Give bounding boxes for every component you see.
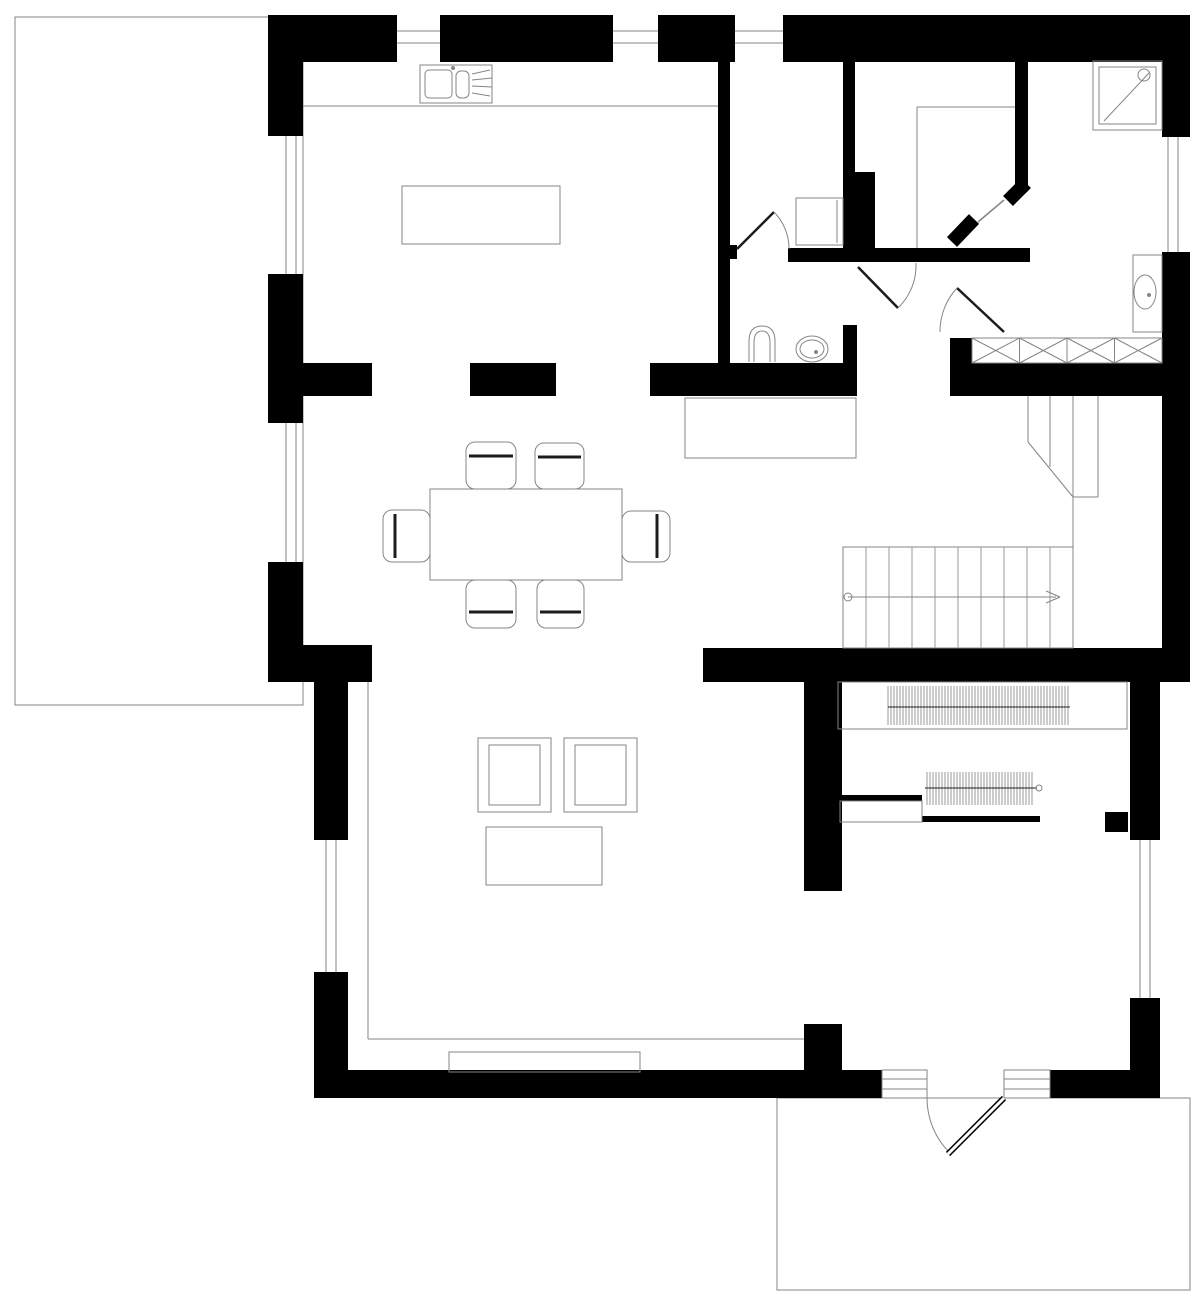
wall-left-a	[268, 15, 303, 136]
wall-kitchen-divider	[718, 62, 730, 363]
shower-drain-line	[1104, 73, 1149, 121]
toilet-bowl-inner	[754, 331, 770, 362]
terrace-left	[15, 17, 303, 705]
wall-pocket	[837, 795, 922, 801]
wall-top-c	[658, 15, 735, 62]
wall-mid-stub-2	[470, 363, 556, 396]
pocket-door-cassette	[840, 801, 922, 822]
wall-bottom-a	[314, 1070, 882, 1098]
wall-diagonal-pier	[1015, 62, 1028, 185]
stairs-arrow-a	[1046, 591, 1060, 597]
shower-head	[1138, 69, 1150, 81]
wall-top-right-corner	[1162, 15, 1190, 137]
wall-bath-top	[788, 248, 1030, 262]
terrace-door-sill	[449, 1052, 640, 1072]
armchair-1-seat	[489, 745, 540, 805]
stairs-arrow-b	[1046, 597, 1060, 603]
wall-vestibule	[922, 816, 1040, 822]
diag-door-leaf	[978, 200, 1004, 222]
vanity-sink-drain	[1148, 294, 1151, 297]
niche-door-a-leaf	[858, 267, 898, 308]
kitchen-drainer-line-3	[472, 86, 492, 87]
wall-top-d	[783, 15, 1162, 62]
dining-table	[430, 489, 622, 580]
bathroom-sink-inner	[800, 340, 824, 358]
kitchen-drainer-line-1	[472, 70, 490, 74]
wall-niche-nub	[950, 338, 972, 396]
wall-stair-band	[703, 648, 1190, 682]
dining-chair-top-2	[535, 443, 584, 489]
dining-chair-left	[383, 510, 430, 562]
kitchen-sink-basin	[425, 70, 452, 98]
bathroom-sink-drain	[815, 351, 818, 354]
wall-hall-lower	[804, 1024, 842, 1070]
wall-lowerleft-a	[314, 682, 348, 840]
wall-vestibule-nub	[1105, 812, 1128, 832]
terrace-bottom-right	[777, 1098, 1190, 1290]
niche-door-a-swing	[898, 263, 916, 308]
armchair-2-seat	[575, 745, 626, 805]
kitchen-sink-tap	[452, 67, 455, 70]
entry-door-swing	[927, 1098, 949, 1152]
vanity-counter	[1133, 255, 1162, 332]
entry-sill-left	[882, 1070, 927, 1098]
wall-upperright	[1162, 252, 1190, 660]
dining-chair-right	[622, 511, 670, 562]
niche-door-b-leaf	[957, 288, 1004, 332]
kitchen-drainer-line-2	[472, 78, 492, 80]
entry-door-leaf-core	[948, 1098, 1004, 1154]
closet-hanger-hatch	[888, 686, 1068, 725]
diag-door-jamb-1	[1008, 183, 1026, 201]
dining-chair-bottom-2	[537, 580, 584, 628]
wall-lowerright-a	[1130, 680, 1160, 840]
closet-outline	[838, 682, 1127, 729]
vanity-sink	[1134, 275, 1156, 309]
entry-sill-right	[1004, 1070, 1050, 1098]
wardrobe-cabinet	[972, 338, 1162, 363]
bath-door-swing	[774, 212, 789, 249]
wall-left-b	[268, 274, 303, 423]
niche-door-b-swing	[940, 288, 957, 332]
wall-mid-stub-1	[268, 363, 372, 396]
dining-chair-top-1	[466, 442, 516, 489]
diag-door-jamb-2	[952, 219, 974, 242]
wall-top-b	[440, 15, 613, 62]
dining-chair-bottom-1	[466, 580, 516, 628]
floor-plan-svg	[0, 0, 1200, 1309]
floor-plan	[0, 0, 1200, 1309]
wall-kitchen-divider-nub	[730, 245, 737, 259]
wall-mid-main	[650, 363, 857, 396]
washing-machine	[796, 198, 843, 245]
wall-niche-stub	[843, 325, 857, 396]
wall-mid-right	[972, 363, 1190, 396]
kitchen-sink-half-basin	[456, 71, 469, 98]
kitchen-island	[402, 186, 560, 244]
bath-door-leaf	[737, 212, 774, 249]
coffee-table	[486, 827, 602, 885]
hall-sideboard	[685, 398, 856, 458]
wall-left-jog	[268, 645, 372, 682]
wall-wc-divider	[843, 62, 855, 172]
wall-lowerright-b	[1130, 998, 1160, 1098]
kitchen-drainer-line-4	[472, 93, 490, 96]
wall-hall-upper	[804, 682, 842, 891]
